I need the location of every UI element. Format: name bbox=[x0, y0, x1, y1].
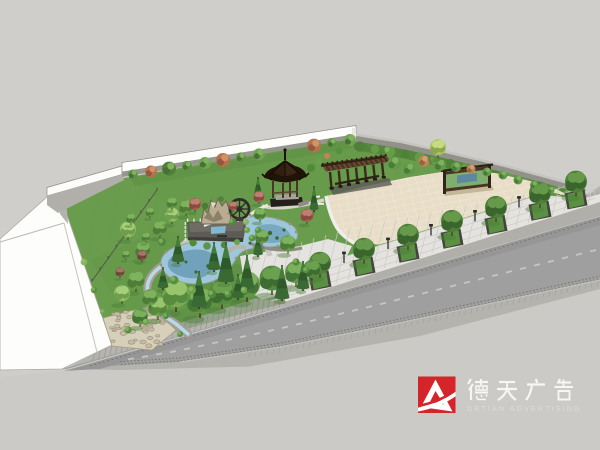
svg-text:DETIAN ADVERTISING: DETIAN ADVERTISING bbox=[467, 404, 582, 413]
